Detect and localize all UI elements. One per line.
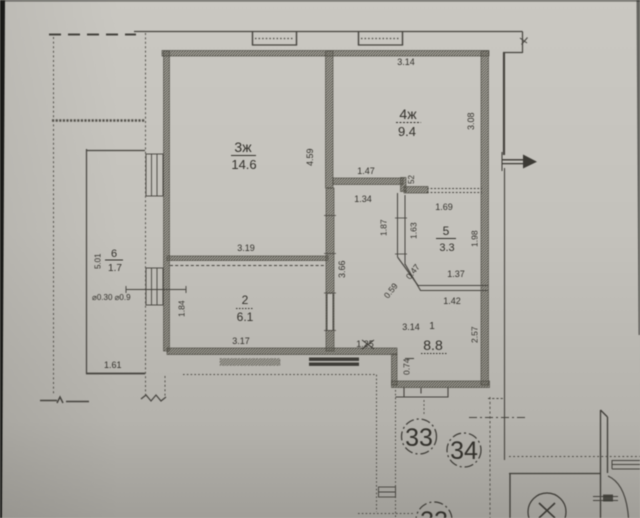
svg-text:3ж: 3ж	[234, 139, 252, 155]
svg-text:32: 32	[420, 507, 448, 518]
svg-text:14.6: 14.6	[231, 157, 256, 172]
svg-text:33: 33	[405, 424, 433, 452]
svg-text:6: 6	[111, 248, 117, 260]
svg-text:0.74: 0.74	[402, 358, 412, 375]
svg-text:34: 34	[450, 437, 478, 465]
svg-text:1.25: 1.25	[356, 339, 374, 349]
svg-text:1.7: 1.7	[108, 263, 122, 274]
svg-text:5: 5	[443, 224, 450, 238]
svg-text:3.17: 3.17	[232, 336, 250, 346]
svg-text:5.01: 5.01	[94, 253, 103, 269]
svg-text:1.34: 1.34	[354, 194, 372, 204]
svg-text:9.4: 9.4	[398, 124, 416, 139]
svg-text:8.8: 8.8	[423, 337, 443, 353]
svg-text:1.84: 1.84	[177, 300, 187, 317]
svg-text:4ж: 4ж	[399, 106, 417, 122]
svg-text:1.47: 1.47	[357, 166, 375, 176]
svg-text:1.42: 1.42	[443, 296, 461, 306]
svg-text:3.3: 3.3	[439, 242, 454, 254]
svg-text:1.69: 1.69	[435, 202, 453, 212]
svg-text:1.63: 1.63	[409, 222, 419, 239]
svg-text:1: 1	[429, 321, 435, 332]
svg-text:6.1: 6.1	[237, 310, 254, 324]
svg-text:2: 2	[242, 293, 249, 307]
svg-text:1.98: 1.98	[470, 230, 480, 247]
svg-text:3.66: 3.66	[337, 260, 347, 278]
svg-text:52: 52	[407, 175, 416, 184]
svg-text:4.59: 4.59	[305, 148, 315, 166]
svg-text:3.19: 3.19	[237, 243, 255, 253]
svg-text:2.57: 2.57	[470, 326, 480, 343]
svg-text:1.87: 1.87	[379, 219, 389, 236]
svg-text:3.14: 3.14	[402, 322, 420, 332]
svg-text:⌀0.30 ⌀0.9: ⌀0.30 ⌀0.9	[92, 293, 131, 302]
svg-text:3.08: 3.08	[466, 112, 476, 130]
svg-text:1.61: 1.61	[104, 360, 122, 370]
svg-text:3.14: 3.14	[397, 57, 415, 67]
svg-text:1.37: 1.37	[447, 269, 465, 279]
